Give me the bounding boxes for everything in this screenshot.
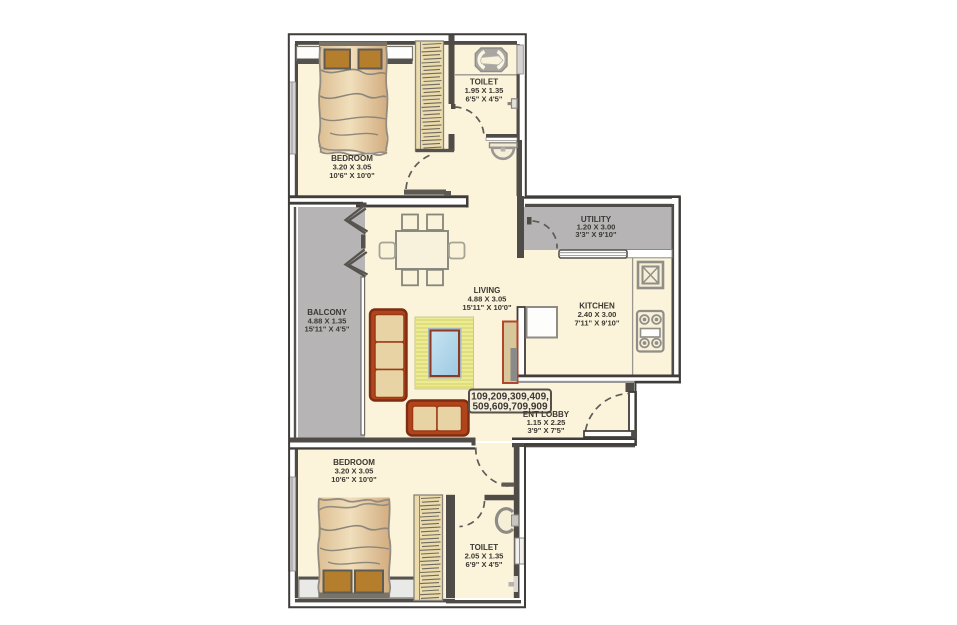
svg-text:7'11" X 9'10": 7'11" X 9'10" <box>574 319 619 328</box>
svg-text:15'11" X 10'0": 15'11" X 10'0" <box>462 303 512 312</box>
svg-text:15'11" X 4'5": 15'11" X 4'5" <box>304 325 349 334</box>
svg-text:6'5" X 4'5": 6'5" X 4'5" <box>466 95 503 104</box>
svg-text:3'9" X 7'5": 3'9" X 7'5" <box>528 426 565 435</box>
svg-text:6'9" X 4'5": 6'9" X 4'5" <box>466 560 503 569</box>
svg-text:10'6" X 10'0": 10'6" X 10'0" <box>331 475 377 484</box>
svg-text:3'3" X 9'10": 3'3" X 9'10" <box>575 230 617 239</box>
svg-text:10'6" X 10'0": 10'6" X 10'0" <box>329 171 375 180</box>
